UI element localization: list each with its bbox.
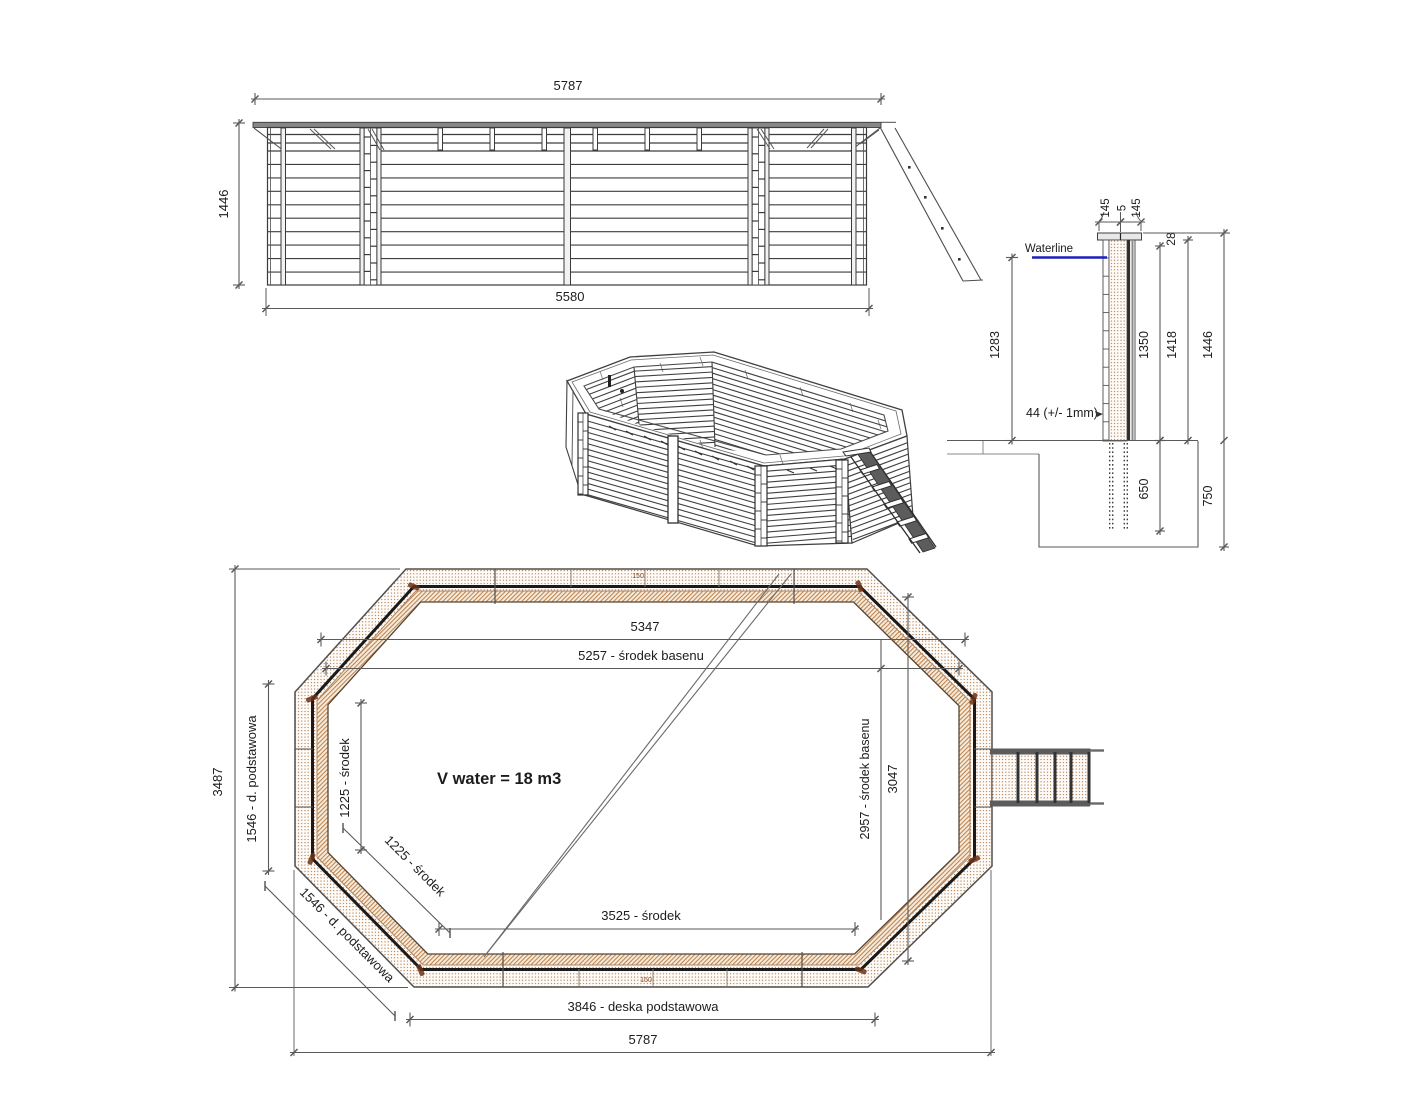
svg-text:28: 28	[1164, 232, 1178, 246]
svg-text:2957 - środek basenu: 2957 - środek basenu	[858, 718, 872, 839]
svg-text:3047: 3047	[885, 765, 900, 794]
svg-text:3846 - deska podstawowa: 3846 - deska podstawowa	[567, 999, 719, 1014]
svg-text:145: 145	[1100, 198, 1112, 217]
svg-text:5787: 5787	[629, 1032, 658, 1047]
svg-text:145: 145	[1131, 198, 1143, 217]
svg-text:750: 750	[1201, 486, 1215, 507]
svg-text:150: 150	[640, 977, 652, 984]
svg-text:44 (+/- 1mm): 44 (+/- 1mm)	[1026, 406, 1098, 420]
svg-text:5787: 5787	[554, 78, 583, 93]
svg-text:1350: 1350	[1137, 331, 1151, 359]
svg-text:1283: 1283	[988, 331, 1002, 359]
svg-text:Waterline: Waterline	[1025, 243, 1073, 255]
svg-text:5347: 5347	[631, 619, 660, 634]
svg-text:150: 150	[632, 573, 644, 580]
svg-text:3487: 3487	[210, 768, 225, 797]
svg-text:5580: 5580	[556, 289, 585, 304]
svg-text:1546 - d. podstawowa: 1546 - d. podstawowa	[244, 715, 259, 843]
svg-text:3525 - środek: 3525 - środek	[601, 908, 681, 923]
svg-text:5257 - środek basenu: 5257 - środek basenu	[578, 648, 704, 663]
svg-text:1446: 1446	[216, 190, 231, 219]
svg-text:5: 5	[1117, 205, 1129, 211]
svg-text:1225 - środek: 1225 - środek	[337, 738, 352, 818]
svg-text:1446: 1446	[1201, 331, 1215, 359]
svg-text:1225 - środek: 1225 - środek	[382, 832, 449, 899]
svg-text:1418: 1418	[1165, 331, 1179, 359]
svg-text:V water = 18 m3: V water = 18 m3	[437, 770, 561, 788]
svg-text:650: 650	[1137, 479, 1151, 500]
